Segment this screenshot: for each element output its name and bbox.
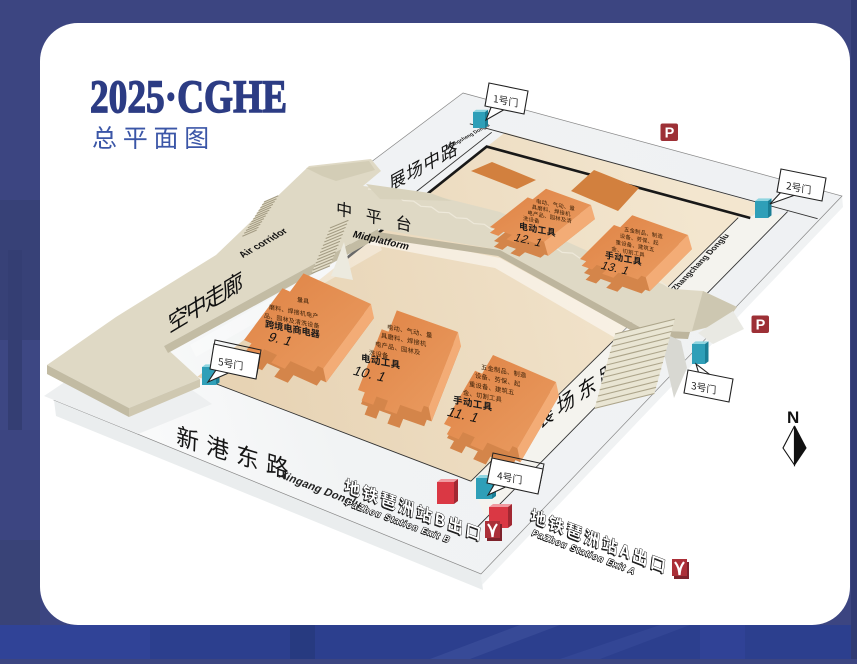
svg-text:P: P [756,318,766,334]
svg-text:N: N [787,408,799,427]
svg-text:2025·CGHE: 2025·CGHE [90,71,287,123]
svg-text:P: P [665,126,675,142]
